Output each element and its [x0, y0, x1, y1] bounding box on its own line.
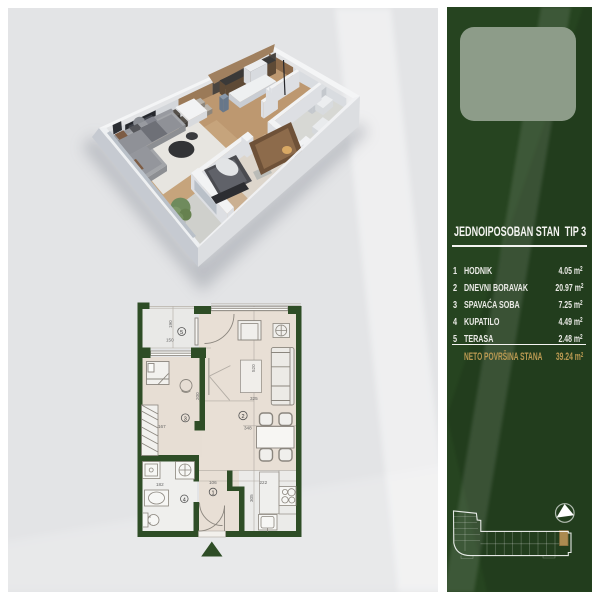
svg-text:2: 2 — [241, 414, 244, 420]
svg-text:222: 222 — [260, 480, 268, 485]
svg-text:325: 325 — [250, 396, 258, 401]
svg-text:200: 200 — [195, 392, 200, 400]
svg-text:1: 1 — [211, 491, 214, 497]
svg-text:106: 106 — [209, 480, 217, 485]
svg-text:4: 4 — [183, 497, 186, 503]
svg-text:3: 3 — [184, 416, 187, 422]
svg-text:182: 182 — [156, 482, 164, 487]
svg-text:190: 190 — [168, 320, 173, 328]
svg-text:167: 167 — [158, 424, 166, 429]
svg-text:520: 520 — [251, 364, 256, 372]
svg-text:5: 5 — [180, 330, 183, 336]
svg-text:150: 150 — [166, 338, 174, 343]
svg-text:348: 348 — [244, 426, 252, 431]
svg-text:305: 305 — [249, 494, 254, 502]
